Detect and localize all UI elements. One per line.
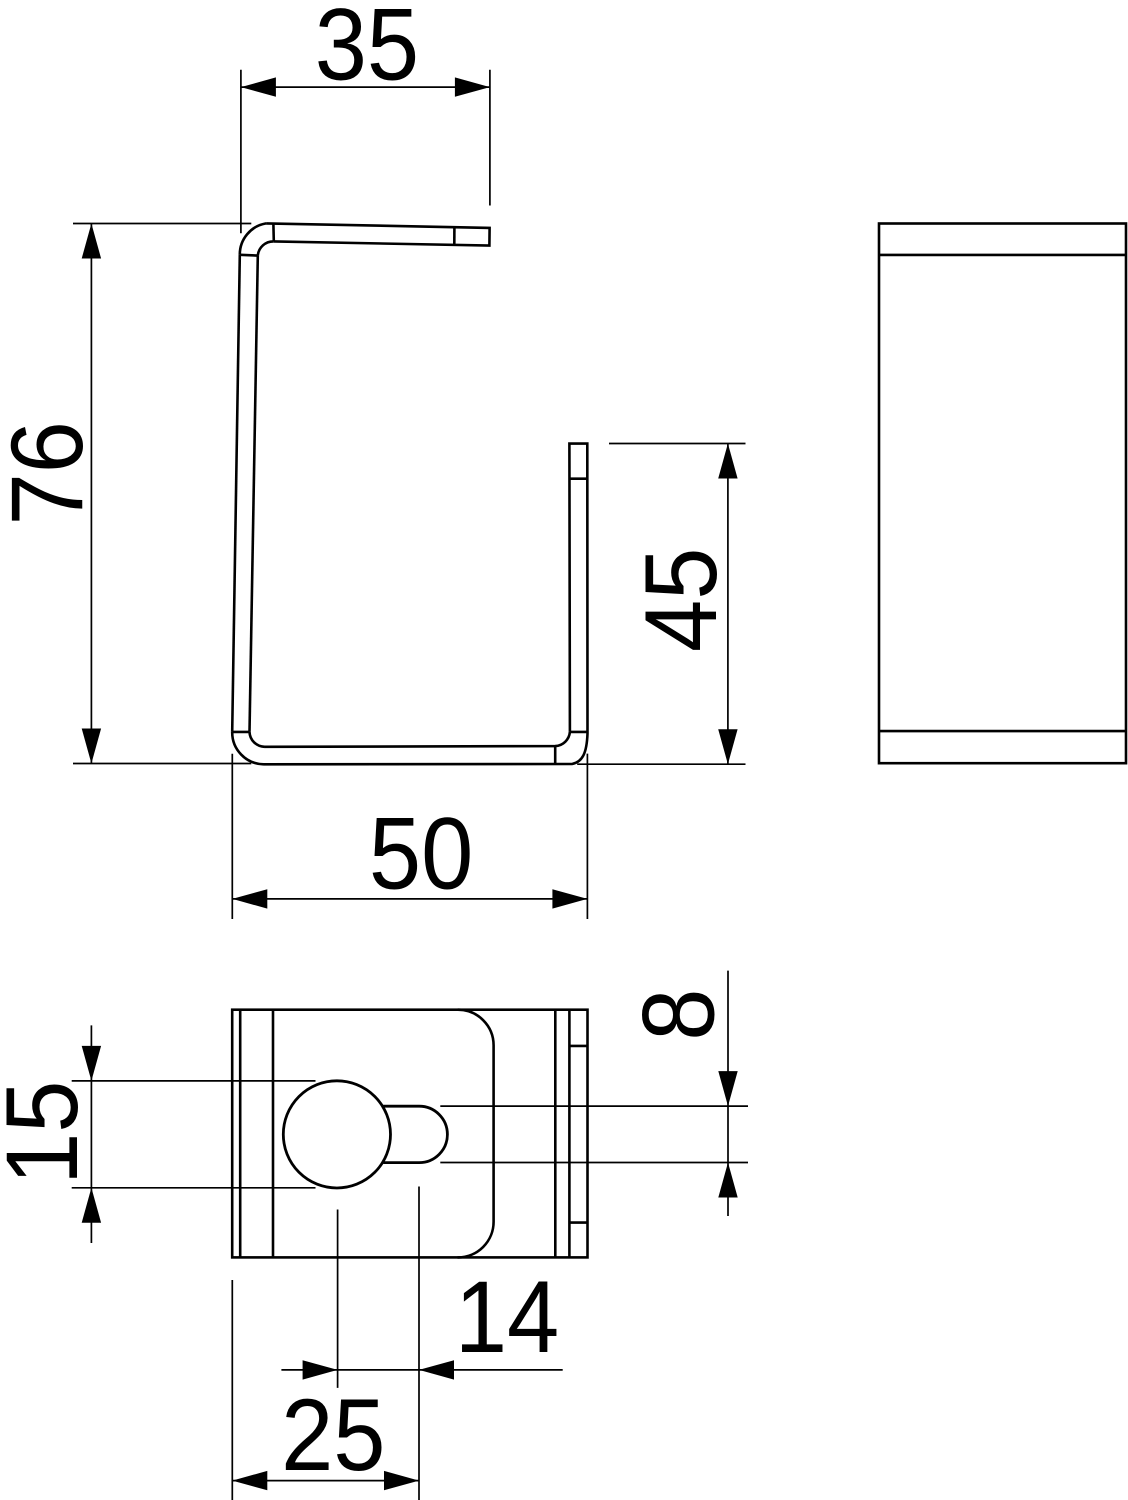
svg-text:14: 14: [455, 1259, 559, 1373]
svg-text:15: 15: [0, 1081, 99, 1185]
svg-text:35: 35: [315, 0, 419, 102]
svg-text:25: 25: [281, 1377, 385, 1491]
svg-text:50: 50: [369, 796, 473, 910]
svg-text:76: 76: [0, 421, 104, 525]
svg-text:8: 8: [621, 989, 735, 1041]
svg-text:45: 45: [623, 548, 737, 652]
